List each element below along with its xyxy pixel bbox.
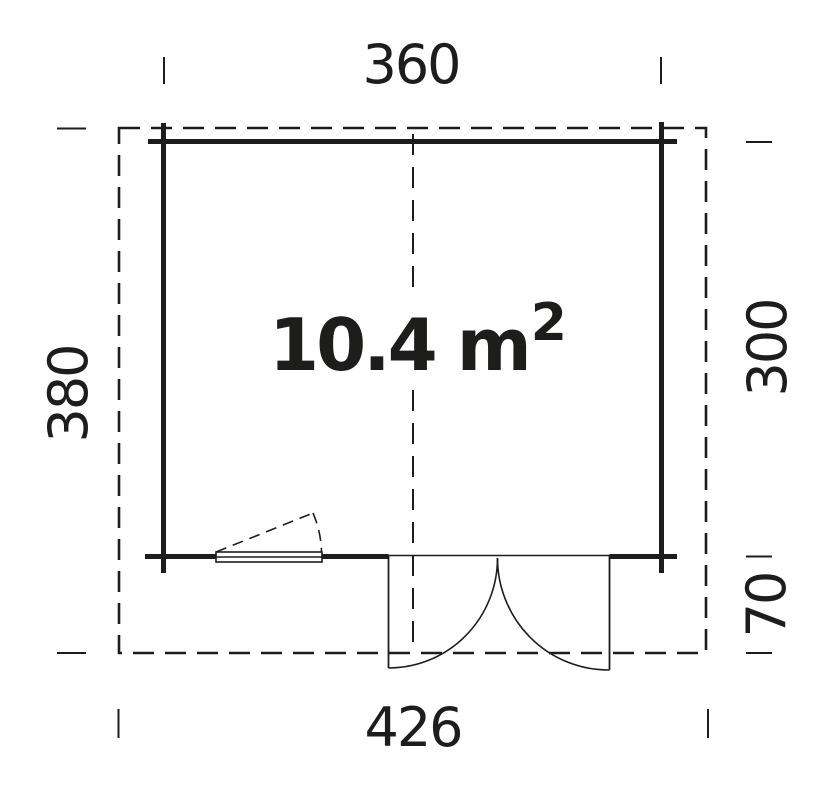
dimension-left-height: 380 bbox=[42, 345, 96, 442]
dimension-right-porch-depth: 70 bbox=[740, 573, 794, 638]
floor-area-exponent: 2 bbox=[531, 293, 567, 353]
dimension-bottom-width: 426 bbox=[364, 701, 461, 755]
floor-area-value: 10.4 m bbox=[269, 303, 529, 387]
floor-plan-drawing bbox=[0, 0, 816, 794]
door-swing-arc-left bbox=[389, 558, 498, 668]
dimension-right-inner-height: 300 bbox=[741, 299, 795, 396]
floor-area-label: 10.4 m2 bbox=[269, 309, 567, 381]
window-swing-line bbox=[216, 513, 313, 552]
window-swing-arc bbox=[313, 513, 322, 552]
floor-plan-canvas: 360 380 300 70 426 10.4 m2 bbox=[0, 0, 816, 794]
dimension-top-width: 360 bbox=[362, 38, 459, 92]
